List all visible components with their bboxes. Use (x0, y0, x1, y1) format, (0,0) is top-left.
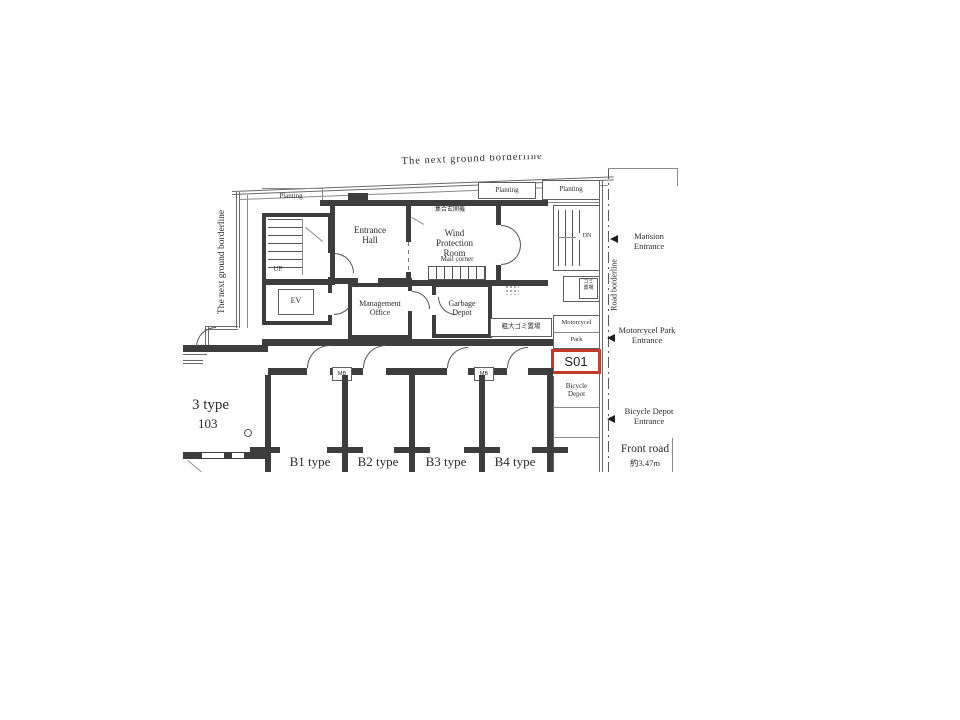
left-unit-door-arc (196, 327, 216, 347)
floor-plan: The next ground borderline The next grou… (180, 155, 680, 472)
borderline-left-label: The next ground borderline (217, 210, 227, 314)
wall-top-notch (348, 193, 368, 201)
planting-label-right: Planting (542, 186, 600, 194)
left-unit-window-1 (202, 453, 224, 458)
parking-space-s01[interactable]: S01 (551, 349, 601, 374)
road-corner-h (608, 168, 678, 169)
wind-protection-room-label: Wind Protection Room (412, 228, 497, 258)
left-edge-lines (183, 360, 203, 364)
bicycle-depot-label: Bicycle Depot (553, 383, 600, 399)
wall-left-unit-bottom (183, 452, 268, 459)
wall-top-thin (548, 202, 600, 203)
eh-wpr-opening (408, 242, 409, 272)
outline-detail-v (322, 188, 323, 200)
left-unit-circle-symbol (244, 429, 252, 437)
bicycle-depot-line-1 (553, 407, 600, 408)
wall-corridor-north (262, 339, 553, 346)
wall-eh-wpr-upper (406, 200, 411, 242)
unit-b1-label: B1 type (275, 455, 345, 470)
unit2-door-arc (363, 345, 386, 368)
dots-symbol (505, 285, 519, 295)
building-east-wall (599, 180, 603, 472)
unit1-door-arc (307, 345, 330, 368)
ev-label: EV (278, 297, 314, 306)
mansion-entrance-label: Mansion Entrance (620, 232, 678, 251)
unit3-door-gap (447, 368, 468, 375)
front-road-width-label: 約3.47m (613, 459, 677, 469)
bicycle-depot-line-2 (553, 437, 600, 438)
wall-wpr-right-upper (496, 203, 501, 225)
mail-corner-label: Mail corner (420, 256, 494, 264)
unit4-door-arc (507, 347, 528, 368)
wall-stub-2 (394, 447, 430, 453)
planting-label-mid: Planting (478, 187, 536, 195)
entrance-hall-label: Entrance Hall (330, 225, 410, 245)
ev-lobby-gap (326, 293, 334, 315)
site-borderline-left (236, 192, 240, 328)
road-borderline-label: Road borderline (610, 259, 619, 311)
motorcycle-park-divider (553, 332, 600, 333)
wall-stub-4 (532, 447, 568, 453)
setback-line-left (247, 195, 248, 328)
left-unit-window-2 (232, 453, 244, 458)
outline-detail-h (262, 188, 322, 189)
unit4-door-gap (507, 368, 528, 375)
bulky-garbage-label: 粗大ゴミ置場 (490, 323, 552, 330)
motorcycle-park-label-2: Park (553, 336, 600, 343)
road-corner-v (677, 168, 678, 186)
intercom-note-label: 集合玄関機 (420, 207, 480, 214)
unit2-door-gap (363, 368, 386, 375)
unit-b3-label: B3 type (411, 455, 481, 470)
motorcycle-park-label-1: Motorcycel (553, 319, 600, 326)
wall-stub-1 (327, 447, 363, 453)
intercom-leader-line (412, 217, 425, 225)
unit-b4-label: B4 type (480, 455, 550, 470)
motorcycle-park-entrance-arrow-icon (607, 334, 615, 342)
planting-label-left: Planting (266, 193, 316, 201)
garbage-out-label: ゴミ 置場 (579, 280, 598, 292)
management-office-label: Management Office (349, 300, 411, 318)
mansion-entrance-arrow-icon (610, 235, 618, 243)
road-borderline-line (608, 168, 609, 472)
stair-divider (302, 219, 303, 275)
mo-door-arc (412, 291, 430, 309)
unit1-door-gap (307, 368, 330, 375)
unit3-door-arc (447, 347, 468, 368)
mailboxes (428, 266, 486, 280)
left-unit-number-label: 103 (198, 417, 248, 432)
wpr-double-door-arc-2 (501, 245, 521, 265)
unit-b2-label: B2 type (343, 455, 413, 470)
front-road-label: Front road (613, 443, 677, 456)
stair-door-arc (334, 253, 354, 273)
motorcycle-park-entrance-label: Motorcycel Park Entrance (615, 326, 679, 345)
up-label: UP (266, 266, 290, 274)
bicycle-depot-entrance-arrow-icon (607, 415, 615, 423)
dn-label: DN (576, 233, 598, 240)
wall-stub-3 (464, 447, 500, 453)
bicycle-depot-entrance-label: Bicycle Depot Entrance (617, 407, 680, 426)
left-unit-diagonal (187, 460, 201, 472)
borderline-top-label: The next ground borderline (352, 155, 592, 170)
wpr-double-door-arc-1 (501, 225, 521, 245)
left-unit-type-label: 3 type (192, 397, 262, 414)
